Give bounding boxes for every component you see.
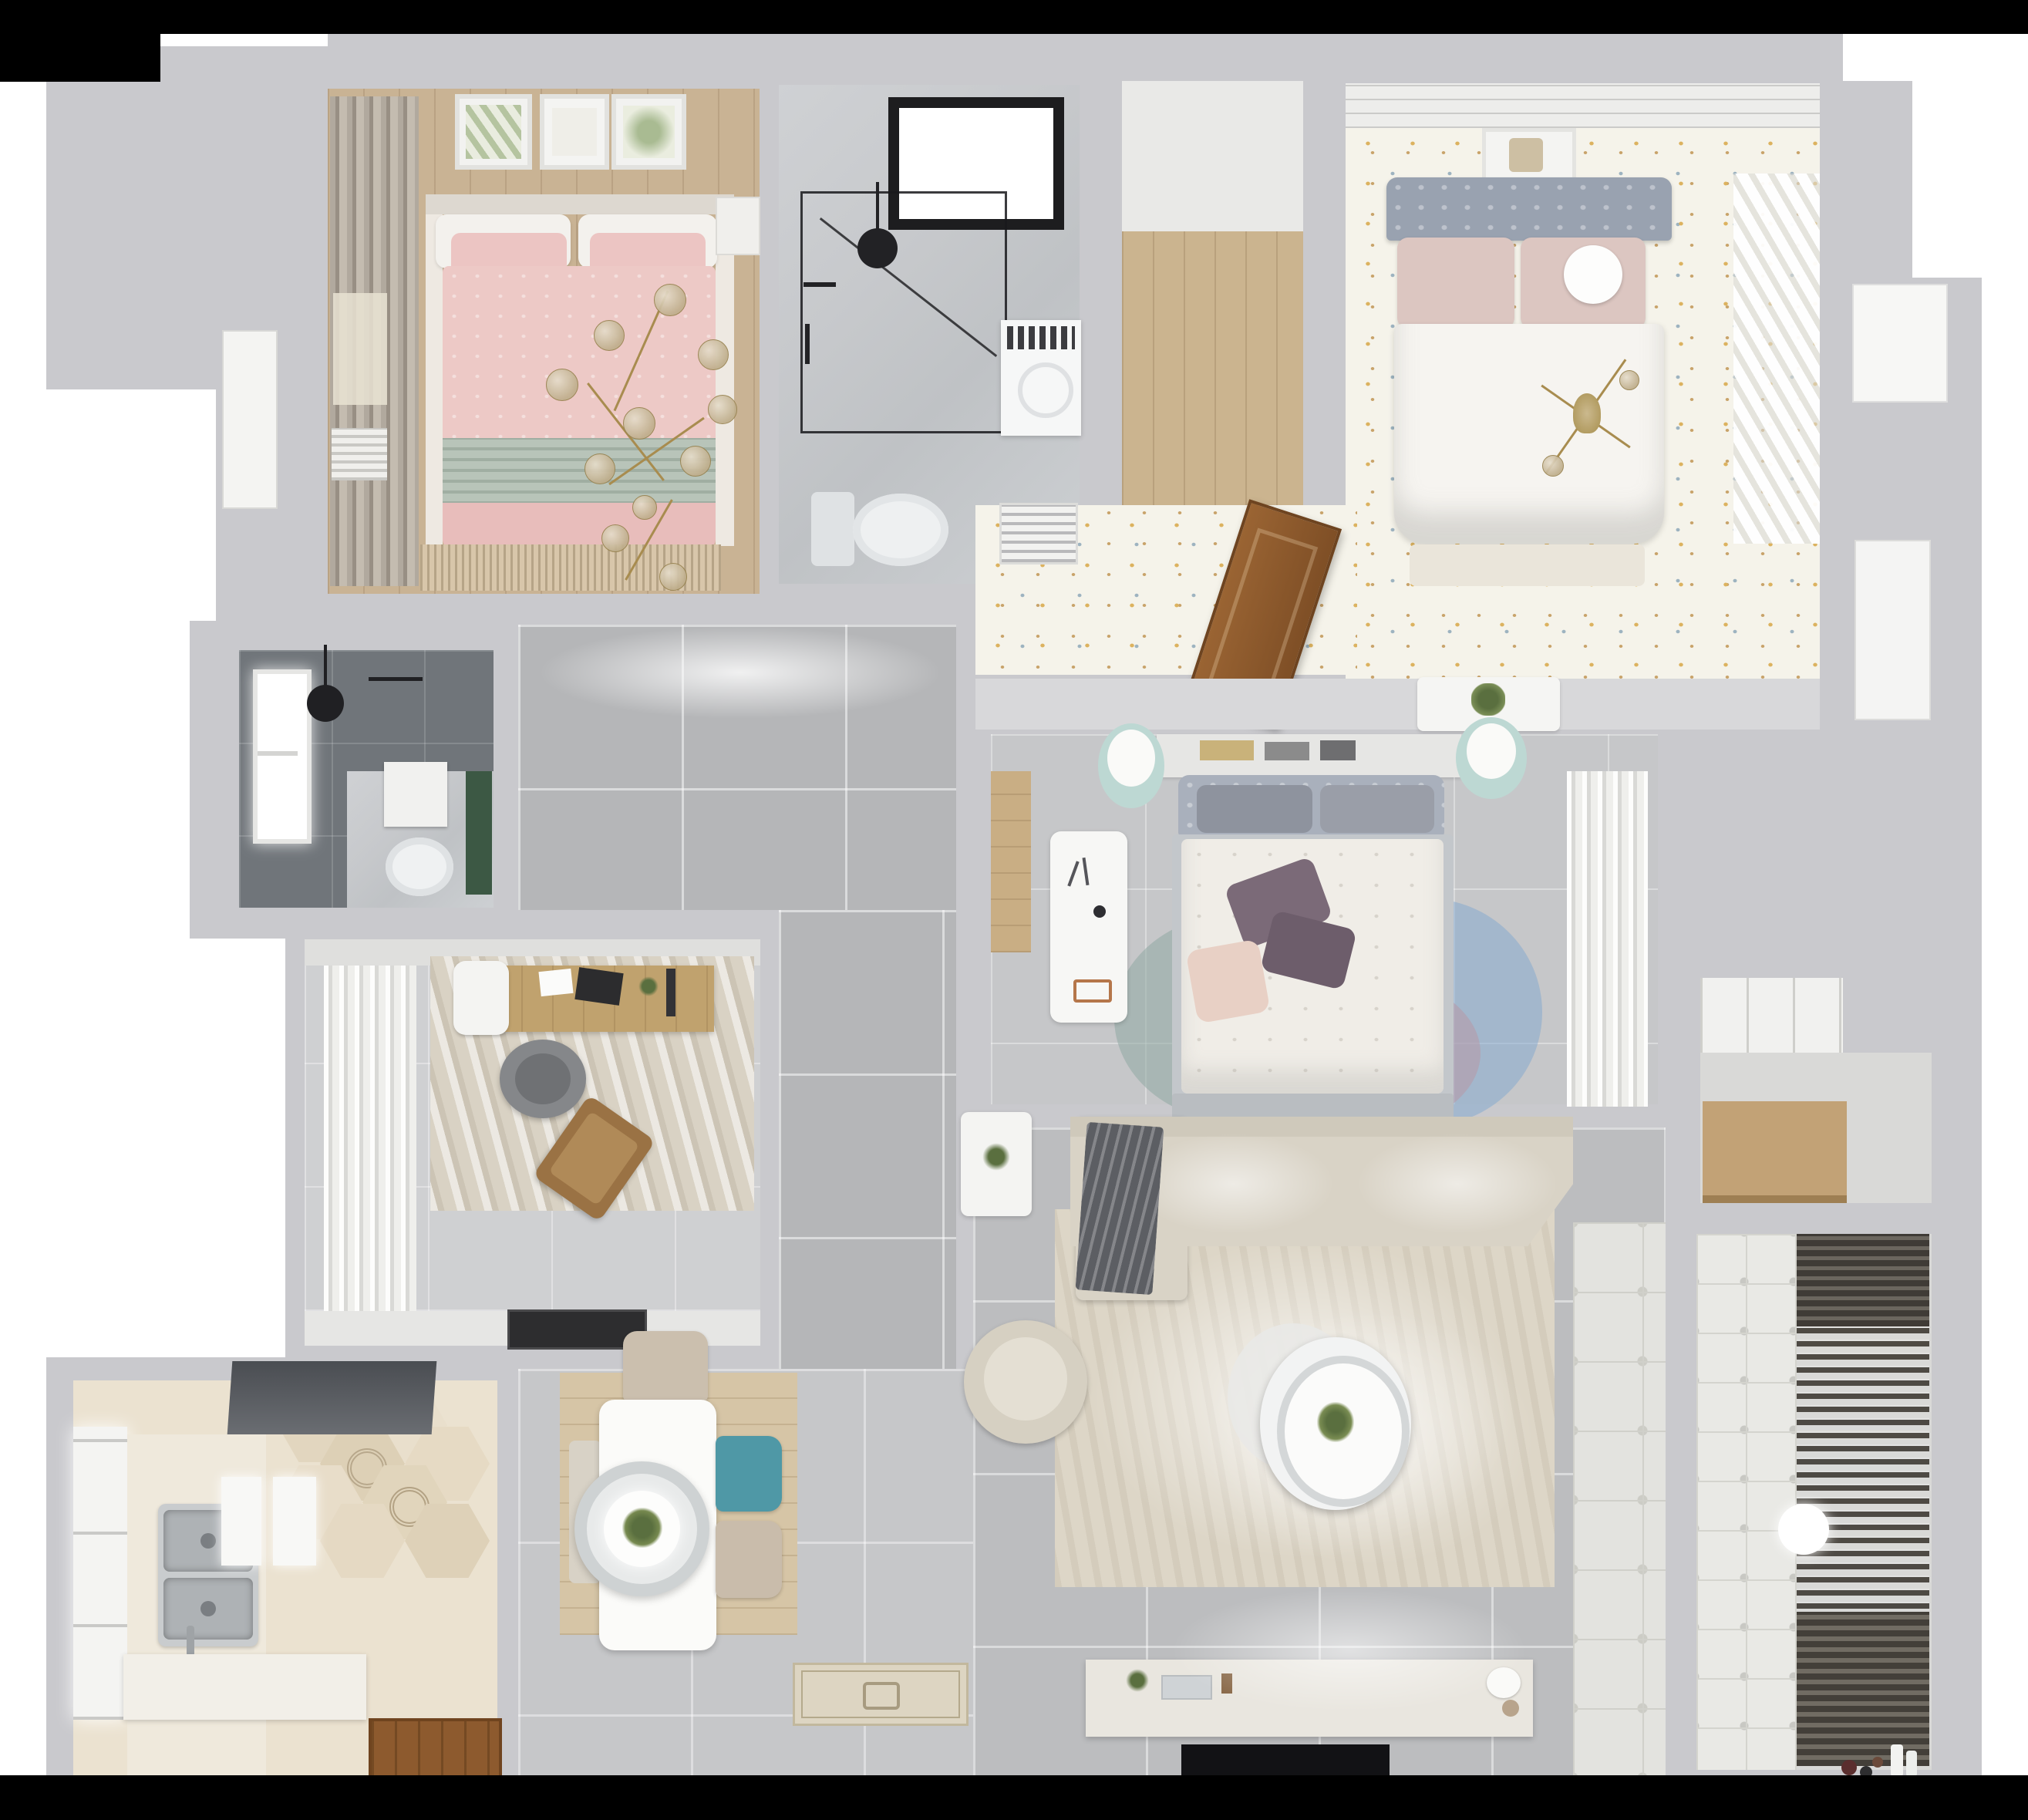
shower-head xyxy=(857,228,898,268)
living-armchair xyxy=(964,1320,1087,1444)
art-print-leaves xyxy=(466,105,521,159)
stool-left-top xyxy=(1107,730,1155,787)
side-table-plant xyxy=(982,1143,1010,1171)
kitchen-white-panel-2 xyxy=(273,1477,316,1566)
kitchen-faucet xyxy=(187,1626,194,1657)
shelf-book-1 xyxy=(1200,740,1254,760)
letterbox-top xyxy=(0,0,2028,34)
study-curtains xyxy=(324,966,416,1313)
shower-enclosure xyxy=(800,191,1007,433)
chandelier-globe-4 xyxy=(698,339,729,370)
chandelier-globe-1 xyxy=(546,369,578,401)
master-gold-lamp xyxy=(1511,339,1666,494)
sofa-light-glow-1 xyxy=(1134,1134,1334,1234)
art-print-script xyxy=(552,108,597,156)
sofa-gray-blanket xyxy=(1076,1122,1164,1295)
living-ornament-walkway xyxy=(1573,1222,1666,1775)
pink-bedroom-nightstand xyxy=(716,197,760,255)
tv-floor-glow xyxy=(1172,1589,1527,1712)
master-lamp-body xyxy=(1573,393,1601,433)
console-plant-small xyxy=(1126,1669,1149,1692)
balcony-rack-dense-bottom xyxy=(1797,1612,1929,1766)
chandelier-small-globe-1 xyxy=(601,524,629,552)
art-frame-1 xyxy=(455,94,532,170)
chandelier-globe-5 xyxy=(623,407,655,440)
hallway-floor-vertical xyxy=(779,910,956,1380)
study-side-chair xyxy=(453,961,509,1035)
letterbox-corner-notch xyxy=(0,0,160,82)
armchair-seat xyxy=(984,1337,1067,1421)
shower-arm xyxy=(876,182,879,230)
study-laptop xyxy=(574,967,623,1006)
dining-pendant-outer xyxy=(574,1461,709,1596)
bathroom-small-wall-frame xyxy=(384,762,447,827)
bathroom-small-window xyxy=(253,669,312,844)
stool-right-top xyxy=(1467,723,1516,779)
art-frame-2 xyxy=(540,94,609,170)
master-art-print xyxy=(1509,138,1543,172)
master-ceiling-band xyxy=(1346,83,1820,128)
study-monitor xyxy=(666,969,675,1016)
exterior-door-upper xyxy=(1852,284,1948,403)
shower-valve-2 xyxy=(805,324,810,364)
washer-door xyxy=(1018,362,1073,418)
bedroom2-wood-strip xyxy=(991,771,1031,952)
doormat-motif xyxy=(863,1682,900,1710)
closet-ceiling-band xyxy=(1122,81,1303,231)
shower-valve-1 xyxy=(803,282,836,287)
dining-chair-right xyxy=(716,1521,782,1598)
balcony-rack-dense-top xyxy=(1797,1234,1929,1326)
ac-vent-grille xyxy=(999,503,1078,565)
bathroom-small-plant-shelf xyxy=(466,771,492,895)
hallway-light-glow xyxy=(540,626,941,719)
chandelier-globe-6 xyxy=(680,446,711,477)
bedroom2-pillow-right xyxy=(1320,785,1434,833)
apartment-floorplan-render xyxy=(0,0,2028,1820)
living-side-table xyxy=(961,1112,1032,1216)
tv-panel xyxy=(1181,1744,1390,1775)
bedroom2-curtains xyxy=(1567,771,1648,1107)
master-lamp-disc-2 xyxy=(1619,370,1639,390)
kitchen-wood-threshold xyxy=(369,1718,502,1781)
chandelier-small-globe-2 xyxy=(659,563,687,591)
dining-chair-top xyxy=(623,1331,708,1402)
master-headboard xyxy=(1386,177,1672,241)
washing-machine xyxy=(1001,320,1081,436)
sink-basin-bottom xyxy=(163,1578,253,1640)
kitchen-white-panel-1 xyxy=(221,1477,261,1566)
chandelier-globe-7 xyxy=(584,453,615,484)
pink-bedroom-window-glow xyxy=(333,293,387,405)
coffee-table xyxy=(1260,1337,1411,1510)
shelf-book-3 xyxy=(1320,740,1356,760)
toilet-main-tank xyxy=(811,492,854,566)
chandelier-globe-8 xyxy=(708,395,737,424)
balcony-toy-1 xyxy=(1841,1760,1857,1775)
bedroom2-footboard xyxy=(1172,1094,1454,1120)
kitchen-hood xyxy=(227,1361,437,1434)
small-shower-valves xyxy=(369,677,423,681)
master-foot-bench xyxy=(1410,544,1645,586)
sink-drain-top xyxy=(200,1533,216,1549)
dining-chair-teal xyxy=(716,1436,782,1512)
study-desk-plant xyxy=(638,976,659,996)
master-lamp-disc xyxy=(1542,455,1564,477)
left-hall-door xyxy=(222,330,278,509)
balcony-bottle-1 xyxy=(1891,1744,1903,1777)
stool-mint-right xyxy=(1456,717,1527,799)
pillow-blush xyxy=(1185,939,1270,1023)
small-shower-arm xyxy=(324,645,327,688)
window-mullion xyxy=(258,751,298,756)
chandelier-small-globe-3 xyxy=(632,495,657,520)
shelf-book-2 xyxy=(1265,742,1309,760)
entry-doormat xyxy=(793,1663,969,1726)
pink-bed-headboard xyxy=(426,194,734,214)
art-frame-3 xyxy=(611,94,686,170)
balcony-round-light xyxy=(1778,1504,1829,1555)
storage-wood-shelf xyxy=(1703,1101,1847,1203)
washer-control-panel xyxy=(1007,326,1075,349)
chandelier-globe-2 xyxy=(594,320,625,351)
bedroom2-pillow-left xyxy=(1197,785,1312,833)
study-office-chair xyxy=(500,1040,586,1118)
letterbox-bottom xyxy=(0,1775,2028,1820)
study-papers xyxy=(538,969,573,996)
desk-knob xyxy=(1093,905,1106,918)
toilet-main-bowl xyxy=(853,494,948,566)
balcony-pattern-strip xyxy=(1696,1234,1797,1770)
balcony-toy-3 xyxy=(1872,1757,1883,1768)
master-sheer-curtains xyxy=(1733,174,1820,544)
desk-pen-2 xyxy=(1083,858,1090,885)
sofa-light-glow-2 xyxy=(1357,1134,1558,1234)
desk-copper-rail xyxy=(1073,979,1112,1003)
balcony-bottle-2 xyxy=(1906,1751,1917,1777)
wall-topleft-block xyxy=(46,69,328,389)
chandelier-globe-3 xyxy=(654,284,686,316)
gold-chandelier-small xyxy=(586,494,717,609)
bedroom2-desk xyxy=(1050,831,1127,1023)
small-shower-head xyxy=(307,685,344,722)
kitchen-bottom-counter xyxy=(123,1654,366,1720)
art-print-botanical xyxy=(623,106,675,158)
console-plant xyxy=(1471,683,1505,716)
desk-pen-1 xyxy=(1067,861,1079,886)
storage-wardrobe-shelves xyxy=(1700,978,1843,1053)
pink-bedroom-bench xyxy=(332,428,387,480)
sink-drain-bottom xyxy=(200,1601,216,1616)
vestibule-south-wall-band xyxy=(975,679,1820,730)
dining-pendant-plant xyxy=(622,1508,662,1548)
coffee-table-plant xyxy=(1317,1402,1354,1442)
master-pillow-left xyxy=(1397,238,1514,329)
shower-glass-diagonal xyxy=(820,217,997,357)
office-chair-seat xyxy=(515,1053,571,1104)
exterior-door-lower xyxy=(1855,540,1931,720)
toilet-small xyxy=(386,838,453,896)
master-round-pillow xyxy=(1564,245,1622,304)
kitchen-window xyxy=(73,1427,127,1720)
stool-mint-left xyxy=(1098,723,1164,808)
